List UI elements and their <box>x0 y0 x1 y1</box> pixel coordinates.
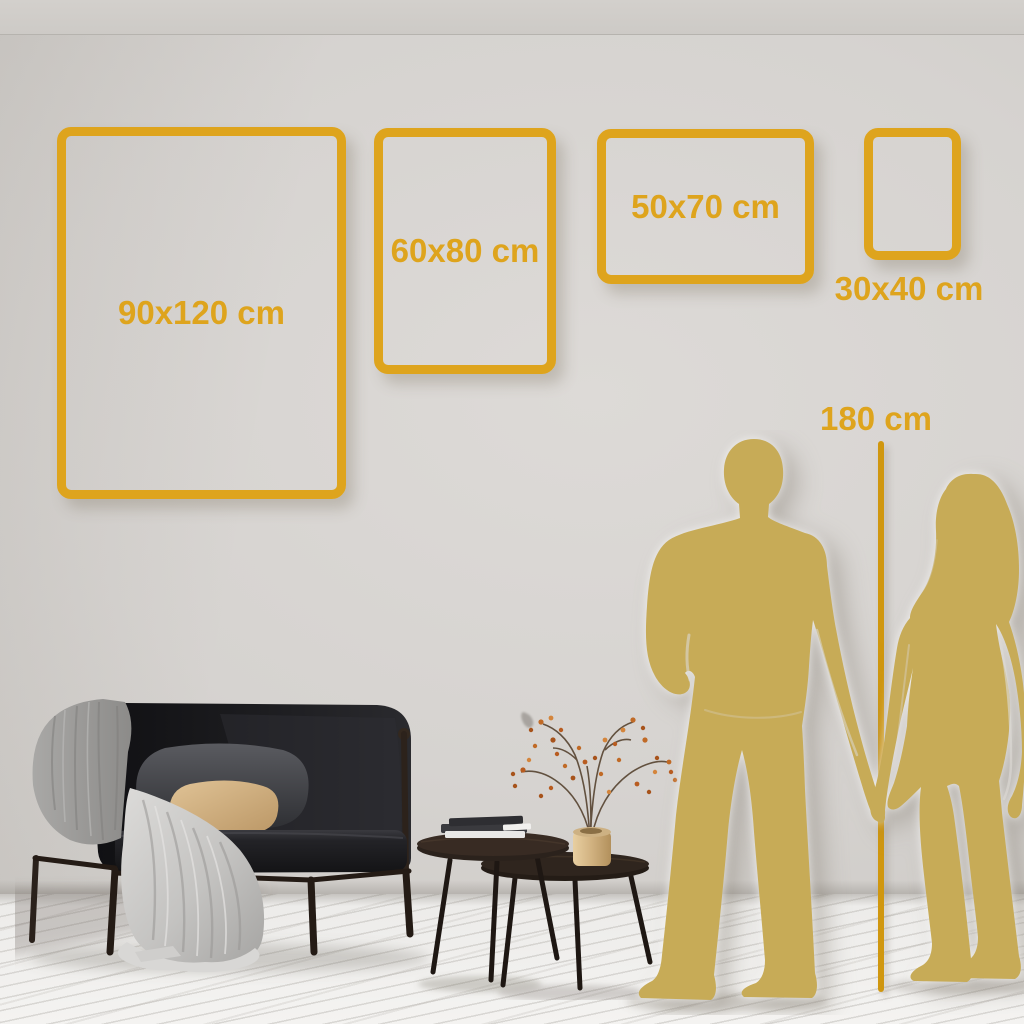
poster-size-guide-scene: 90x120 cm 60x80 cm 50x70 cm 30x40 cm 180… <box>0 0 1024 1024</box>
sofa-throw-blanket-arm <box>33 699 132 845</box>
frame-60x80: 60x80 cm <box>374 128 556 374</box>
wall-smudge <box>521 712 533 728</box>
nesting-table-small <box>417 832 569 980</box>
vase <box>573 827 611 866</box>
sofa <box>15 690 460 990</box>
frame-90x120: 90x120 cm <box>57 127 346 499</box>
man-silhouette <box>639 439 885 1000</box>
frame-30x40 <box>864 128 961 260</box>
frame-30x40-label: 30x40 cm <box>824 270 994 308</box>
frame-60x80-label: 60x80 cm <box>391 232 540 270</box>
woman-silhouette <box>870 474 1024 982</box>
ceiling <box>0 0 1024 35</box>
couple-silhouette <box>615 430 1024 1015</box>
frame-50x70: 50x70 cm <box>597 129 814 284</box>
books-stack <box>441 816 531 838</box>
frame-90x120-label: 90x120 cm <box>118 294 285 332</box>
frame-50x70-label: 50x70 cm <box>631 188 780 226</box>
